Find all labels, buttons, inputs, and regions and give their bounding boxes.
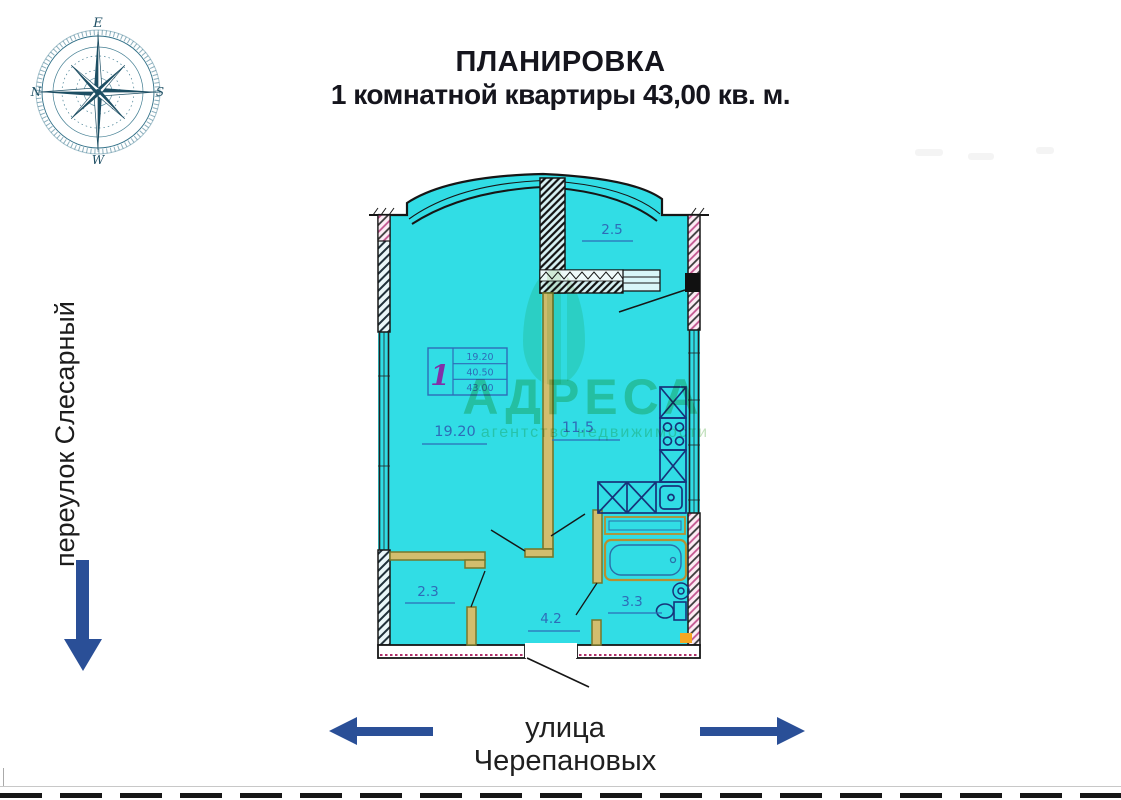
- street-label-left: переулок Слесарный: [52, 282, 79, 567]
- frame-corner-line: [3, 768, 4, 786]
- window-right: [688, 330, 700, 513]
- right-arrow-head-icon: [777, 717, 805, 745]
- hallway-area-label: 4.2: [540, 611, 561, 627]
- left-arrow-icon: [356, 727, 433, 736]
- entrance-opening: [525, 643, 577, 658]
- faint-artifact: [968, 153, 994, 160]
- compass-right-label: S: [156, 85, 164, 99]
- page-subtitle: 1 комнатной квартиры 43,00 кв. м.: [0, 79, 1121, 111]
- floor-plan: 2.5 19.20 11.5 2.3 4.2 3.3 1 19.20 40.50…: [363, 166, 715, 696]
- stamp-living-area: 19.20: [466, 352, 493, 363]
- loggia-cabinet: [623, 270, 660, 291]
- orange-marker: [680, 633, 692, 643]
- compass-top-label: E: [92, 16, 103, 31]
- bathroom-area-label: 3.3: [621, 594, 642, 610]
- street-label-bottom: улица Черепановых: [430, 712, 700, 778]
- living-room-area-label: 19.20: [434, 424, 476, 440]
- left-wall: [378, 215, 390, 645]
- frame-bottom-dashes: [0, 793, 1121, 798]
- bottom-wall: [378, 643, 700, 687]
- right-arrow-icon: [700, 727, 778, 736]
- page: ПЛАНИРОВКА 1 комнатной квартиры 43,00 кв…: [0, 0, 1121, 800]
- compass-star: [40, 34, 156, 150]
- window-left: [378, 332, 390, 550]
- down-arrow-icon: [76, 560, 89, 640]
- entrance-door-swing: [527, 658, 589, 687]
- down-arrow-head-icon: [64, 639, 102, 671]
- compass-rose-icon: E S W N: [30, 14, 166, 166]
- left-arrow-head-icon: [329, 717, 357, 745]
- page-title: ПЛАНИРОВКА: [0, 46, 1121, 79]
- compass-left-label: N: [30, 85, 42, 99]
- kitchen-area-label: 11.5: [562, 420, 594, 436]
- frame-bottom-line: [0, 786, 1121, 787]
- compass-bottom-label: W: [92, 153, 106, 166]
- wardrobe-area-label: 2.3: [417, 584, 438, 600]
- stamp-apartment-number: 1: [430, 359, 449, 392]
- faint-artifact: [1036, 147, 1054, 154]
- faint-artifact: [915, 149, 943, 156]
- stamp-apartment-area: 40.50: [466, 368, 493, 379]
- stamp-total-area: 43.00: [466, 383, 493, 394]
- loggia-area-label: 2.5: [601, 222, 622, 238]
